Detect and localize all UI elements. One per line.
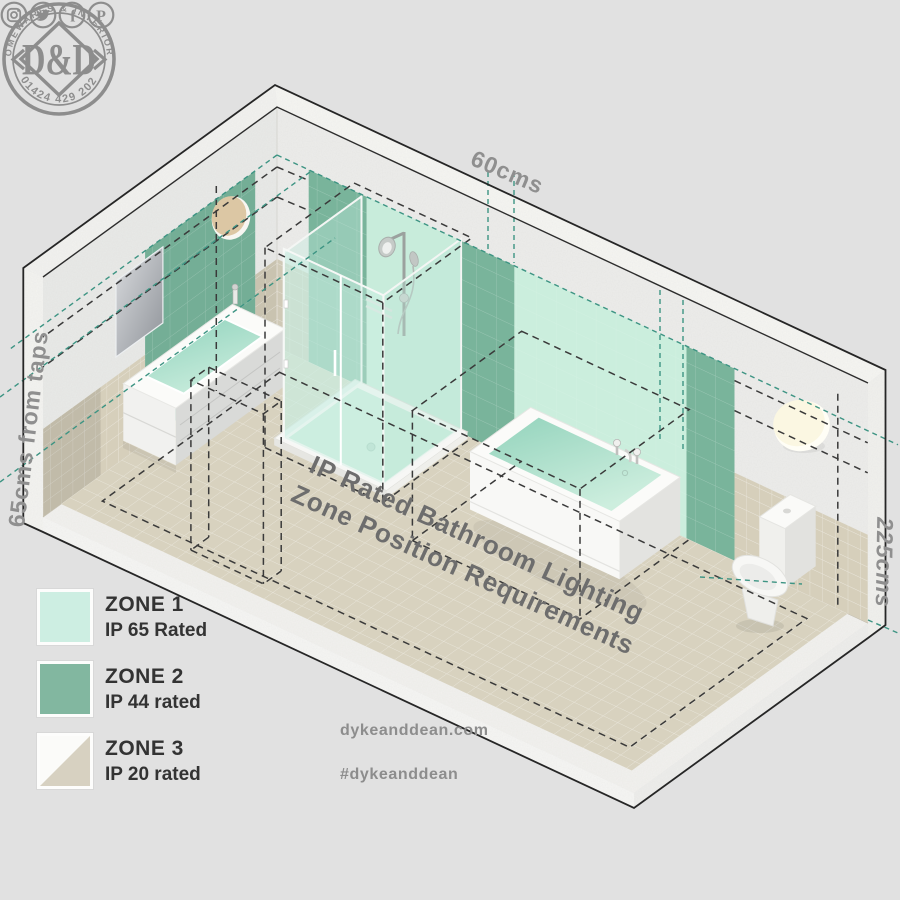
zone1-rating: IP 65 Rated: [105, 620, 207, 642]
zone3-rating: IP 20 rated: [105, 764, 201, 786]
svg-text:f: f: [70, 7, 76, 26]
hashtag: #dykeanddean: [340, 766, 458, 784]
svg-text:P: P: [96, 8, 106, 25]
zone1-swatch: [37, 589, 93, 645]
legend-row-zone2: ZONE 2 IP 44 rated: [37, 661, 207, 717]
stamp-monogram: D&D: [22, 35, 96, 84]
zone1-label: ZONE 1: [105, 593, 207, 617]
instagram-icon: [2, 3, 27, 28]
dimension-right: 225cms: [869, 484, 899, 640]
zone2-rating: IP 44 rated: [105, 692, 201, 714]
legend-row-zone3: ZONE 3 IP 20 rated: [37, 733, 207, 789]
zone3-label: ZONE 3: [105, 737, 201, 761]
social-icons: f P: [0, 0, 120, 30]
sink-tap: [233, 288, 238, 304]
pinterest-icon: P: [89, 3, 114, 28]
website-url: dykeanddean.com: [340, 722, 489, 740]
legend-row-zone1: ZONE 1 IP 65 Rated: [37, 589, 207, 645]
zone2-label: ZONE 2: [105, 665, 201, 689]
facebook-icon: f: [60, 3, 85, 28]
twitter-icon: [31, 3, 56, 28]
poster: 60cms 65cms from taps 225cms IP Rated Ba…: [0, 0, 900, 900]
zone2-swatch: [37, 661, 93, 717]
zone3-swatch: [37, 733, 93, 789]
zone-legend: ZONE 1 IP 65 Rated ZONE 2 IP 44 rated ZO…: [37, 589, 207, 805]
flush-button: [783, 509, 791, 514]
